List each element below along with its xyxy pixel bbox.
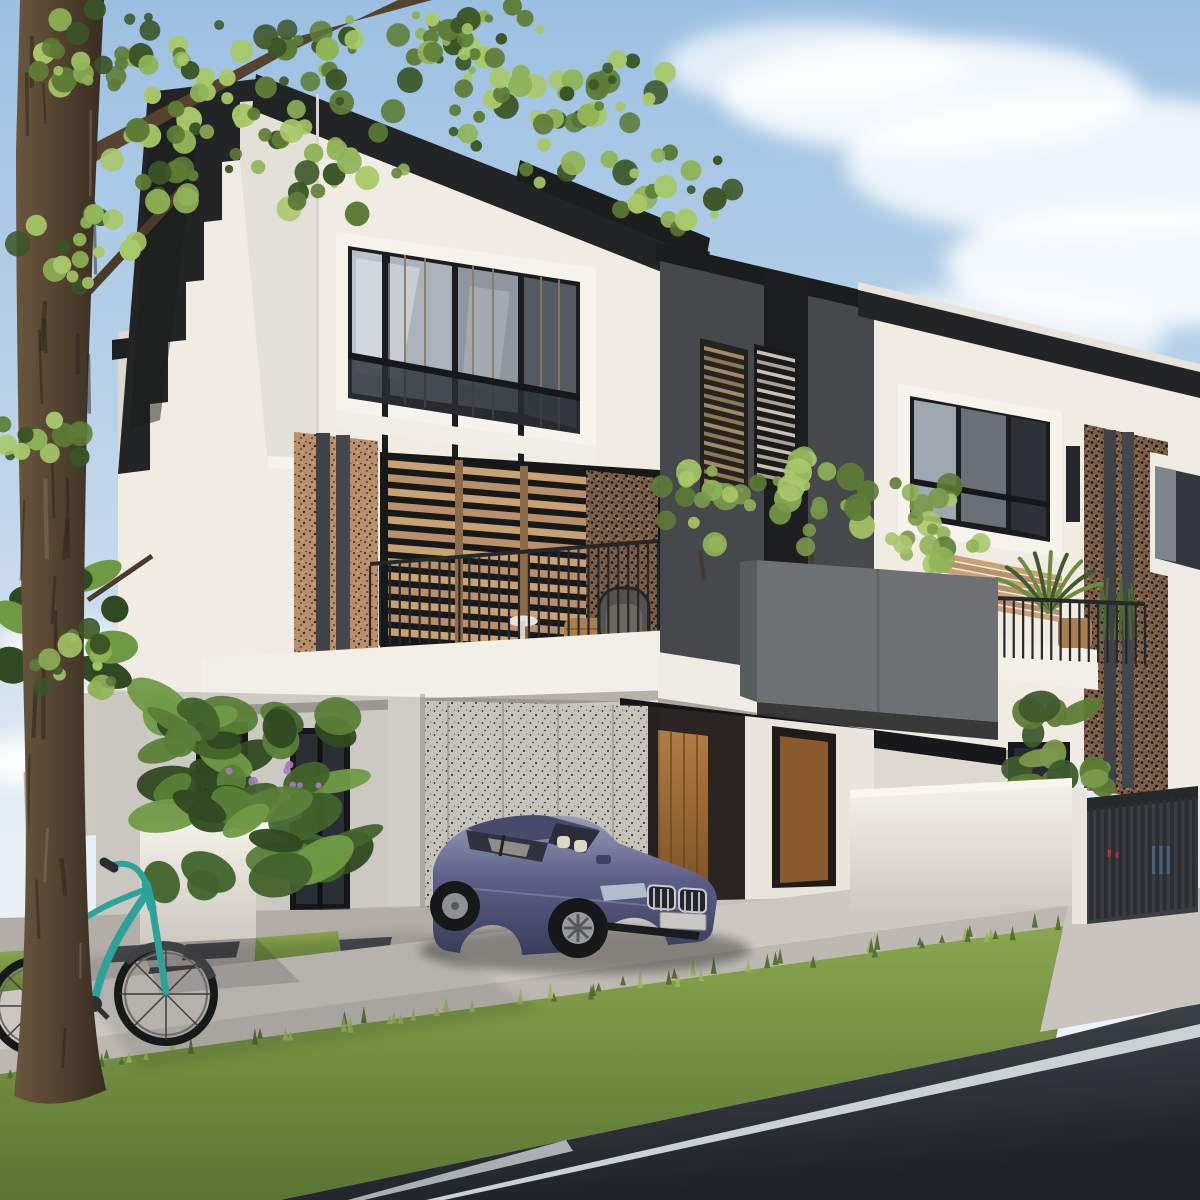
planter-side <box>740 560 757 702</box>
car-seat <box>574 840 587 852</box>
license-plate <box>660 912 706 930</box>
timber-door-2 <box>780 736 828 883</box>
unit2-pane-2 <box>961 408 1006 528</box>
car-mirror <box>596 855 611 864</box>
gate-post <box>1072 788 1087 924</box>
unit2-slit-window <box>1066 446 1080 522</box>
far-corner-glass-light <box>1155 466 1176 562</box>
unit2-low-wall <box>850 778 1072 913</box>
bike-grip <box>104 862 114 868</box>
rear-hub <box>451 902 459 910</box>
driveway-gate-bars <box>1091 796 1194 920</box>
unit2-pane-3 <box>1011 417 1046 537</box>
car-seat <box>557 836 570 848</box>
render-canvas <box>0 0 1200 1200</box>
architectural-render <box>0 0 1200 1200</box>
front-wheel-spokes <box>564 914 592 942</box>
